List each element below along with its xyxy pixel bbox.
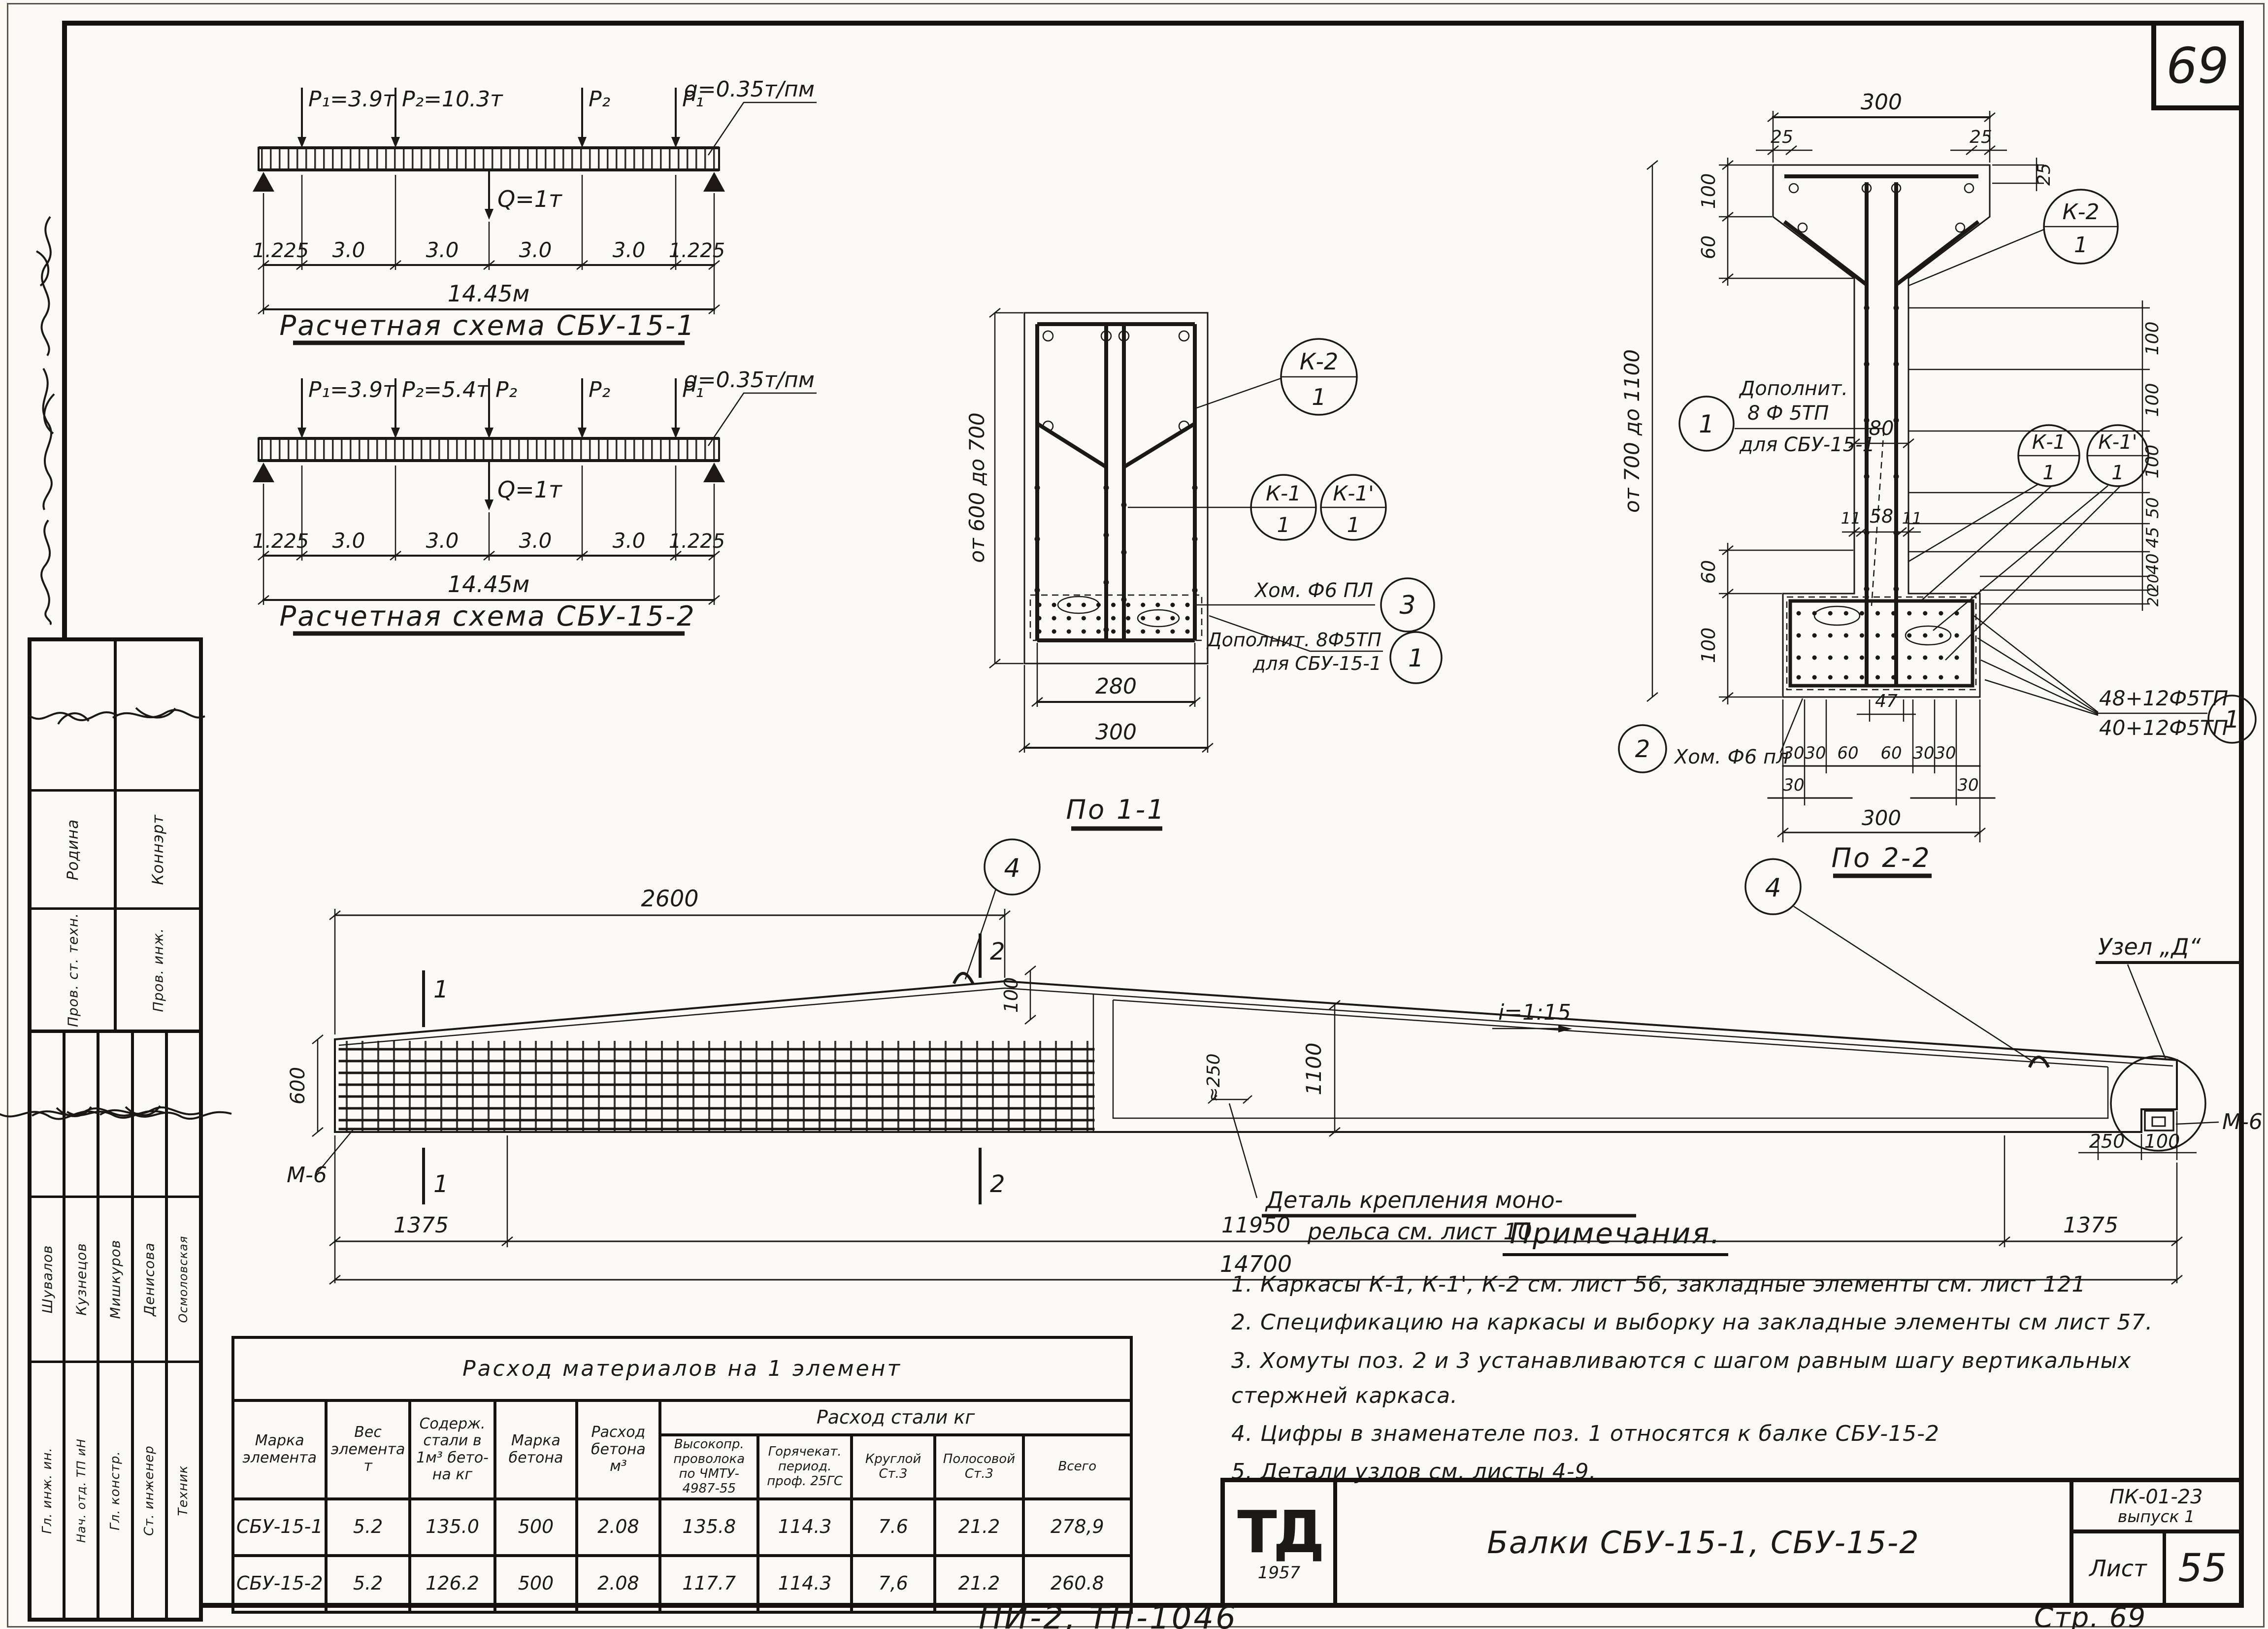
stamp-lane: Родина Пров. ст. техн. bbox=[32, 641, 117, 1030]
spacing-dim: 45 bbox=[2143, 527, 2163, 548]
stamp-role: Гл. констр. bbox=[108, 1451, 123, 1530]
code-line-1: ПК-01-23 bbox=[2109, 1486, 2202, 1508]
cell: 135.0 bbox=[410, 1499, 495, 1556]
m6-left-label: М-6 bbox=[287, 1163, 327, 1188]
q-leader: q=0.35т/пм bbox=[684, 77, 817, 155]
project-code: ПК-01-23 выпуск 1 bbox=[2073, 1482, 2239, 1533]
table-title: Расход материалов на 1 элемент bbox=[233, 1337, 1131, 1400]
margin-signature-scribble bbox=[32, 517, 64, 626]
bdim: 30 bbox=[1783, 743, 1804, 763]
role-cell: Ст. инженер bbox=[134, 1363, 165, 1618]
bdim: 30 bbox=[1805, 743, 1826, 763]
sheet-number: 55 bbox=[2166, 1533, 2239, 1603]
dim-11: 11 bbox=[1902, 509, 1922, 528]
q-label: q=0.35т/пм bbox=[684, 77, 815, 102]
callout-mark: К-2 bbox=[2062, 199, 2099, 225]
extra-label-3: для СБУ-15-1 bbox=[1739, 433, 1875, 456]
detail-note-1: Деталь крепления моно- bbox=[1265, 1187, 1563, 1213]
signature-cell bbox=[32, 641, 114, 792]
dim-100: 100 bbox=[1698, 173, 1719, 209]
stamp-name: Денисова bbox=[141, 1242, 158, 1316]
m6-right: М-6 bbox=[2222, 1109, 2263, 1134]
stamp-group-checkers: Родина Пров. ст. техн. Коннэрт Пров. инж… bbox=[32, 641, 199, 1033]
cell: СБУ-15-2 bbox=[233, 1556, 326, 1612]
stirrup-pos: 2 bbox=[1635, 735, 1650, 763]
dim: 3.0 bbox=[426, 529, 459, 553]
col-header-soderzh: Содерж. стали в 1м³ бето- на кг bbox=[410, 1400, 495, 1499]
materials-table: Расход материалов на 1 элемент Марка эле… bbox=[231, 1336, 1133, 1614]
drawing-title: Балки СБУ-15-1, СБУ-15-2 bbox=[1337, 1482, 2070, 1603]
dim-25: 25 bbox=[1970, 127, 1992, 147]
Q-label: Q=1т bbox=[497, 186, 562, 212]
dim-25: 25 bbox=[1771, 127, 1793, 147]
bdim2: 30 bbox=[1957, 775, 1978, 795]
role-cell: Нач. отд. ТП иН bbox=[66, 1363, 97, 1618]
dim-2600: 2600 bbox=[641, 885, 698, 912]
total-dim: 14.45м bbox=[448, 571, 529, 598]
margin-signature-scribble bbox=[30, 365, 62, 512]
support-left bbox=[253, 172, 274, 192]
stirrup-label: Хом. Ф6 пл bbox=[1674, 746, 1789, 768]
drawing-sheet: 69 P₁=3.9т P₂=10.3т P₂ P₁ bbox=[0, 0, 2268, 1629]
table-row: СБУ-15-1 5.2 135.0 500 2.08 135.8 114.3 … bbox=[233, 1499, 1131, 1556]
height-label: от 700 до 1100 bbox=[1620, 349, 1644, 513]
margin-signature-scribble bbox=[31, 212, 63, 360]
extra-label-1: Дополнит. 8Ф5ТП bbox=[1206, 629, 1381, 651]
col-header-rashod-betona: Расход бетона м³ bbox=[577, 1400, 660, 1499]
logo-monogram: ТД bbox=[1237, 1503, 1321, 1561]
name-cell: Осмоловская bbox=[168, 1198, 199, 1363]
support-right bbox=[703, 463, 725, 482]
col-header-total: Всего bbox=[1023, 1435, 1131, 1499]
load-label: P₂ bbox=[589, 377, 610, 402]
callout-pos: 1 bbox=[2074, 233, 2088, 258]
name-cell: Шувалов bbox=[32, 1198, 63, 1363]
cell: 21.2 bbox=[935, 1499, 1023, 1556]
note-item: 4. Цифры в знаменателе поз. 1 относятся … bbox=[1231, 1416, 2236, 1451]
schema1-title: Расчетная схема СБУ-15-1 bbox=[279, 310, 695, 342]
col-header-strip: Полосовой Ст.3 bbox=[935, 1435, 1023, 1499]
load-label: P₁=3.9т bbox=[308, 87, 396, 112]
stamp-role: Техник bbox=[176, 1465, 191, 1516]
signature-cell bbox=[117, 641, 199, 792]
slope: i=1:15 bbox=[1498, 1000, 1571, 1025]
load-label: P₂ bbox=[495, 377, 517, 402]
left-height-dim: от 600 до 700 bbox=[965, 308, 1023, 668]
note-item: 3. Хомуты поз. 2 и 3 устанавливаются с ш… bbox=[1231, 1343, 2236, 1414]
load-schema-sbu-15-2: P₁=3.9т P₂=5.4т P₂ P₂ P₁ q=0.35т/пм Q=1т… bbox=[212, 355, 818, 640]
dim-60: 60 bbox=[1698, 560, 1719, 584]
dim: 3.0 bbox=[613, 238, 646, 262]
height-label: от 600 до 700 bbox=[965, 412, 989, 563]
name-cell: Мишкуров bbox=[99, 1198, 131, 1363]
load-label: P₂=5.4т bbox=[402, 377, 490, 402]
mark-1: 1 bbox=[433, 976, 449, 1003]
stirrup-callout: 2 Хом. Ф6 пл bbox=[1619, 698, 1803, 772]
support-left bbox=[253, 463, 274, 482]
load-label: P₂=10.3т bbox=[402, 87, 503, 112]
role-cell: Гл. инж. ин. bbox=[32, 1363, 63, 1618]
section-marks: 1 1 2 2 bbox=[424, 933, 1005, 1204]
cell: 2.08 bbox=[577, 1556, 660, 1612]
extra-pos: 1 bbox=[1408, 644, 1424, 672]
stamp-name: Коннэрт bbox=[149, 814, 167, 885]
col-header-marka: Марка элемента bbox=[233, 1400, 326, 1499]
callout-mark: К-1' bbox=[1333, 481, 1374, 505]
cell: 500 bbox=[495, 1499, 576, 1556]
logo-year: 1957 bbox=[1258, 1563, 1301, 1583]
dim: 3.0 bbox=[332, 529, 365, 553]
signature-stamp-sidebar: Родина Пров. ст. техн. Коннэрт Пров. инж… bbox=[28, 637, 203, 1622]
spacing-dim: 50 bbox=[2143, 497, 2163, 518]
sheet-label: Лист bbox=[2073, 1533, 2166, 1603]
dim-58: 58 bbox=[1870, 505, 1893, 527]
wire-count-callout: 48+12Ф5ТП 40+12Ф5ТП 1 bbox=[1974, 616, 2256, 743]
spacing-dim: 40 bbox=[2143, 553, 2163, 574]
name-cell: Кузнецов bbox=[66, 1198, 97, 1363]
dim: 1.225 bbox=[253, 530, 309, 553]
cell: 135.8 bbox=[660, 1499, 758, 1556]
col-header-marka-betona: Марка бетона bbox=[495, 1400, 576, 1499]
col-header-hotrolled: Горячекат. период. проф. 25ГС bbox=[758, 1435, 851, 1499]
mark-1: 1 bbox=[433, 1170, 449, 1198]
stamp-role: Ст. инженер bbox=[142, 1445, 157, 1536]
stamp-lane: Коннэрт Пров. инж. bbox=[117, 641, 199, 1030]
stamp-name: Кузнецов bbox=[73, 1243, 89, 1316]
dim-2600: 2600 100 bbox=[329, 885, 1036, 1034]
stirrup-label: Хом. Ф6 ПЛ bbox=[1254, 579, 1373, 602]
bdim2: 30 bbox=[1783, 775, 1804, 795]
callout-pos: 1 bbox=[2111, 462, 2124, 484]
bottom-dims: 280 300 bbox=[1019, 643, 1213, 753]
stamp-name: Мишкуров bbox=[107, 1240, 124, 1319]
cell: 5.2 bbox=[326, 1499, 409, 1556]
extra-wires-callout: Дополнит. 8Ф5ТП для СБУ-15-1 1 bbox=[1206, 616, 1442, 683]
bdim: 30 bbox=[1913, 743, 1934, 763]
stamp-role: Пров. ст. техн. bbox=[65, 912, 81, 1027]
Q-label: Q=1т bbox=[497, 476, 562, 503]
bdim: 60 bbox=[1837, 743, 1858, 763]
dim: 3.0 bbox=[426, 238, 459, 262]
node-D: Узел „Д“ М-6 250 100 bbox=[2078, 933, 2263, 1160]
Q-arrow: Q=1т bbox=[485, 463, 562, 510]
col-header-steel-group: Расход стали кг bbox=[660, 1400, 1131, 1435]
bdim: 60 bbox=[1880, 743, 1902, 763]
m6-left: М-6 bbox=[287, 1129, 354, 1188]
stamp-role: Пров. инж. bbox=[150, 928, 166, 1012]
name-cell: Денисова bbox=[134, 1198, 165, 1363]
callout-pos: 1 bbox=[1277, 513, 1290, 537]
mark-2: 2 bbox=[990, 1170, 1005, 1198]
dim-11: 11 bbox=[1841, 509, 1861, 528]
footer-page-number: Стр. 69 bbox=[2034, 1602, 2146, 1629]
extra-label-1: Дополнит. bbox=[1739, 377, 1848, 400]
signature-cell bbox=[168, 1033, 199, 1198]
callout-k2: К-2 1 bbox=[1197, 339, 1357, 415]
callout-mark: К-1 bbox=[1266, 481, 1301, 505]
q-label: q=0.35т/пм bbox=[684, 367, 815, 393]
dim-1375: 1375 bbox=[394, 1213, 449, 1238]
dim: 1.225 bbox=[669, 530, 725, 553]
stamp-name: Шувалов bbox=[39, 1245, 55, 1314]
load-label: P₁=3.9т bbox=[308, 377, 396, 402]
col-header-round: Круглой Ст.3 bbox=[852, 1435, 935, 1499]
title-block-right: ПК-01-23 выпуск 1 Лист 55 bbox=[2070, 1482, 2239, 1603]
cell: 278,9 bbox=[1023, 1499, 1131, 1556]
role-cell: Техник bbox=[168, 1363, 199, 1618]
callout-4: 4 bbox=[1765, 873, 1781, 903]
dim-100: 100 bbox=[1698, 628, 1719, 664]
q-leader: q=0.35т/пм bbox=[684, 367, 817, 446]
callout-mark: К-1 bbox=[2032, 431, 2066, 454]
dim-60: 60 bbox=[1698, 235, 1719, 259]
dim-1100: 1100 bbox=[1302, 1000, 1340, 1136]
wires-pos: 1 bbox=[2225, 706, 2240, 733]
callout-pos: 1 bbox=[2042, 462, 2055, 484]
callout-k2: К-2 1 bbox=[1908, 190, 2118, 286]
total-dim: 14.45м bbox=[448, 280, 529, 307]
dim-47: 47 bbox=[1875, 691, 1898, 711]
dim-250-approx: ≈250 bbox=[1204, 1054, 1224, 1102]
bottom-flange-wires bbox=[1787, 597, 1976, 690]
dim-1100: 1100 bbox=[1302, 1043, 1326, 1096]
dim: 3.0 bbox=[519, 238, 552, 262]
cell: 126.2 bbox=[410, 1556, 495, 1612]
stamp-role: Гл. инж. ин. bbox=[40, 1447, 55, 1534]
cell: 500 bbox=[495, 1556, 576, 1612]
callout-k1-k1p: К-1 1 К-1' 1 bbox=[1908, 425, 2148, 660]
cell: 114.3 bbox=[758, 1499, 851, 1556]
stamp-name: Осмоловская bbox=[176, 1236, 190, 1323]
load-arrows: P₁=3.9т P₂=5.4т P₂ P₂ P₁ bbox=[297, 377, 704, 438]
extra-label-2: 8 Ф 5ТП bbox=[1747, 402, 1829, 425]
dim-25-rot: 25 bbox=[2034, 163, 2054, 186]
load-schema-sbu-15-1: P₁=3.9т P₂=10.3т P₂ P₁ q=0.35т/пм Q=1т bbox=[212, 64, 818, 350]
cell: 7.6 bbox=[852, 1499, 935, 1556]
signature-scribble bbox=[24, 700, 122, 730]
dim: 1.225 bbox=[253, 239, 309, 262]
node-label: Узел „Д“ bbox=[2098, 933, 2201, 960]
support-right bbox=[703, 172, 725, 192]
cross-section-1-1: от 600 до 700 280 300 К-2 1 К-1 1 К-1' 1 bbox=[965, 276, 1458, 857]
prestress-wire-zone bbox=[1030, 595, 1202, 640]
role-cell: Пров. инж. bbox=[117, 910, 199, 1030]
load-label: P₂ bbox=[589, 87, 610, 112]
wires-top: 48+12Ф5ТП bbox=[2099, 686, 2228, 710]
signature-scribble bbox=[109, 700, 207, 730]
stirrup-pos: 3 bbox=[1399, 591, 1415, 620]
spacing-dim: 100 bbox=[2142, 445, 2163, 479]
footer-document-code: ПИ-2, ТП-1046 bbox=[837, 1600, 1379, 1629]
extra-label-2: для СБУ-15-1 bbox=[1252, 653, 1381, 674]
callout-mark: К-2 bbox=[1300, 348, 1339, 375]
stamp-group-designers: Шувалов Гл. инж. ин. Кузнецов Нач. отд. … bbox=[32, 1033, 199, 1618]
dim-300-top: 300 bbox=[1861, 90, 1902, 115]
extra-pos: 1 bbox=[1699, 410, 1714, 438]
cell: 117.7 bbox=[660, 1556, 758, 1612]
dim: 3.0 bbox=[519, 529, 552, 553]
schema2-title: Расчетная схема СБУ-15-2 bbox=[279, 600, 695, 632]
sheet-cell: Лист 55 bbox=[2073, 1533, 2239, 1603]
name-cell: Родина bbox=[32, 792, 114, 910]
title-block: ТД 1957 Балки СБУ-15-1, СБУ-15-2 ПК-01-2… bbox=[1220, 1478, 2239, 1603]
dim-100: 100 bbox=[2144, 1130, 2180, 1152]
callout-4: 4 bbox=[1004, 854, 1020, 883]
spacing-dim: 20 bbox=[2145, 588, 2162, 606]
role-cell: Гл. констр. bbox=[99, 1363, 131, 1618]
stamp-lane: Осмоловская Техник bbox=[168, 1033, 199, 1618]
spacing-dim: 100 bbox=[2142, 383, 2163, 417]
dim: 3.0 bbox=[613, 529, 646, 553]
notes-title: Примечания. bbox=[1231, 1217, 2000, 1250]
col-header-ves: Вес элемента т bbox=[326, 1400, 409, 1499]
dim-600-left: 600 bbox=[287, 1035, 323, 1136]
section-outline bbox=[1024, 313, 1208, 664]
col-header-wire: Высокопр. проволока по ЧМТУ- 4987-55 bbox=[660, 1435, 758, 1499]
dim: 1.225 bbox=[669, 239, 725, 262]
dim-100-apex: 100 bbox=[1000, 977, 1022, 1013]
callout-pos: 1 bbox=[1347, 513, 1360, 537]
signature-scribble bbox=[129, 1102, 237, 1127]
note-item: 2. Спецификацию на каркасы и выборку на … bbox=[1231, 1305, 2236, 1340]
dim-250: 250 bbox=[2089, 1130, 2125, 1152]
callout-k1-k1p: К-1 1 К-1' 1 bbox=[1128, 475, 1386, 540]
mesh-zone bbox=[340, 994, 1093, 1132]
mark-2: 2 bbox=[990, 938, 1005, 965]
bdim: 30 bbox=[1935, 743, 1956, 763]
dim-280: 280 bbox=[1095, 674, 1137, 699]
cross-section-2-2: 300 25 25 25 100 60 60 100 от 700 до 110… bbox=[1606, 64, 2261, 877]
name-cell: Коннэрт bbox=[117, 792, 199, 910]
cell: СБУ-15-1 bbox=[233, 1499, 326, 1556]
left-dims: 100 60 60 100 от 700 до 1100 bbox=[1620, 158, 1853, 704]
callout-mark: К-1' bbox=[2098, 431, 2137, 454]
Q-arrow: Q=1т bbox=[485, 172, 562, 220]
callout-pos: 1 bbox=[1312, 384, 1326, 410]
dim: 3.0 bbox=[332, 238, 365, 262]
note-item: 1. Каркасы К-1, К-1', К-2 см. лист 56, з… bbox=[1231, 1267, 2236, 1302]
stamp-name: Родина bbox=[64, 819, 82, 880]
cell: 2.08 bbox=[577, 1499, 660, 1556]
dim-300: 300 bbox=[1095, 720, 1137, 745]
role-cell: Пров. ст. техн. bbox=[32, 910, 114, 1030]
notes-block: Примечания. 1. Каркасы К-1, К-1', К-2 см… bbox=[1231, 1217, 2236, 1493]
code-line-2: выпуск 1 bbox=[2118, 1508, 2195, 1526]
load-arrows: P₁=3.9т P₂=10.3т P₂ P₁ bbox=[297, 87, 704, 148]
spacing-dim: 100 bbox=[2142, 322, 2163, 356]
org-logo: ТД 1957 bbox=[1225, 1482, 1337, 1603]
dim-600: 600 bbox=[287, 1067, 309, 1104]
cell: 5.2 bbox=[326, 1556, 409, 1612]
stamp-role: Нач. отд. ТП иН bbox=[74, 1438, 88, 1543]
